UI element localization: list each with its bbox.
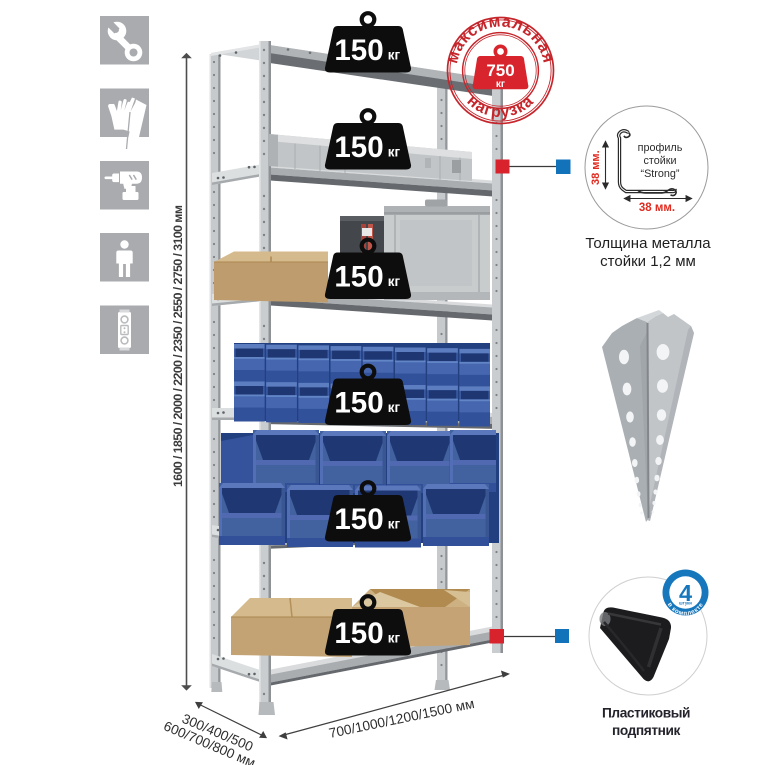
- svg-text:штуки: штуки: [679, 601, 692, 606]
- svg-text:1600 / 1850 / 2000 / 2200 / 23: 1600 / 1850 / 2000 / 2200 / 2350 / 2550 …: [171, 205, 185, 487]
- svg-text:Толщина металла: Толщина металла: [585, 235, 711, 252]
- svg-text:стойки: стойки: [643, 155, 676, 167]
- svg-text:38 мм.: 38 мм.: [590, 150, 602, 185]
- svg-text:Пластиковый: Пластиковый: [602, 706, 690, 721]
- svg-text:“Strong”: “Strong”: [640, 168, 679, 180]
- svg-text:750: 750: [486, 61, 514, 80]
- svg-text:стойки 1,2 мм: стойки 1,2 мм: [600, 253, 696, 270]
- svg-text:профиль: профиль: [638, 142, 683, 154]
- svg-text:38 мм.: 38 мм.: [639, 202, 675, 214]
- svg-text:кг: кг: [496, 79, 505, 90]
- svg-text:подпятник: подпятник: [612, 723, 681, 738]
